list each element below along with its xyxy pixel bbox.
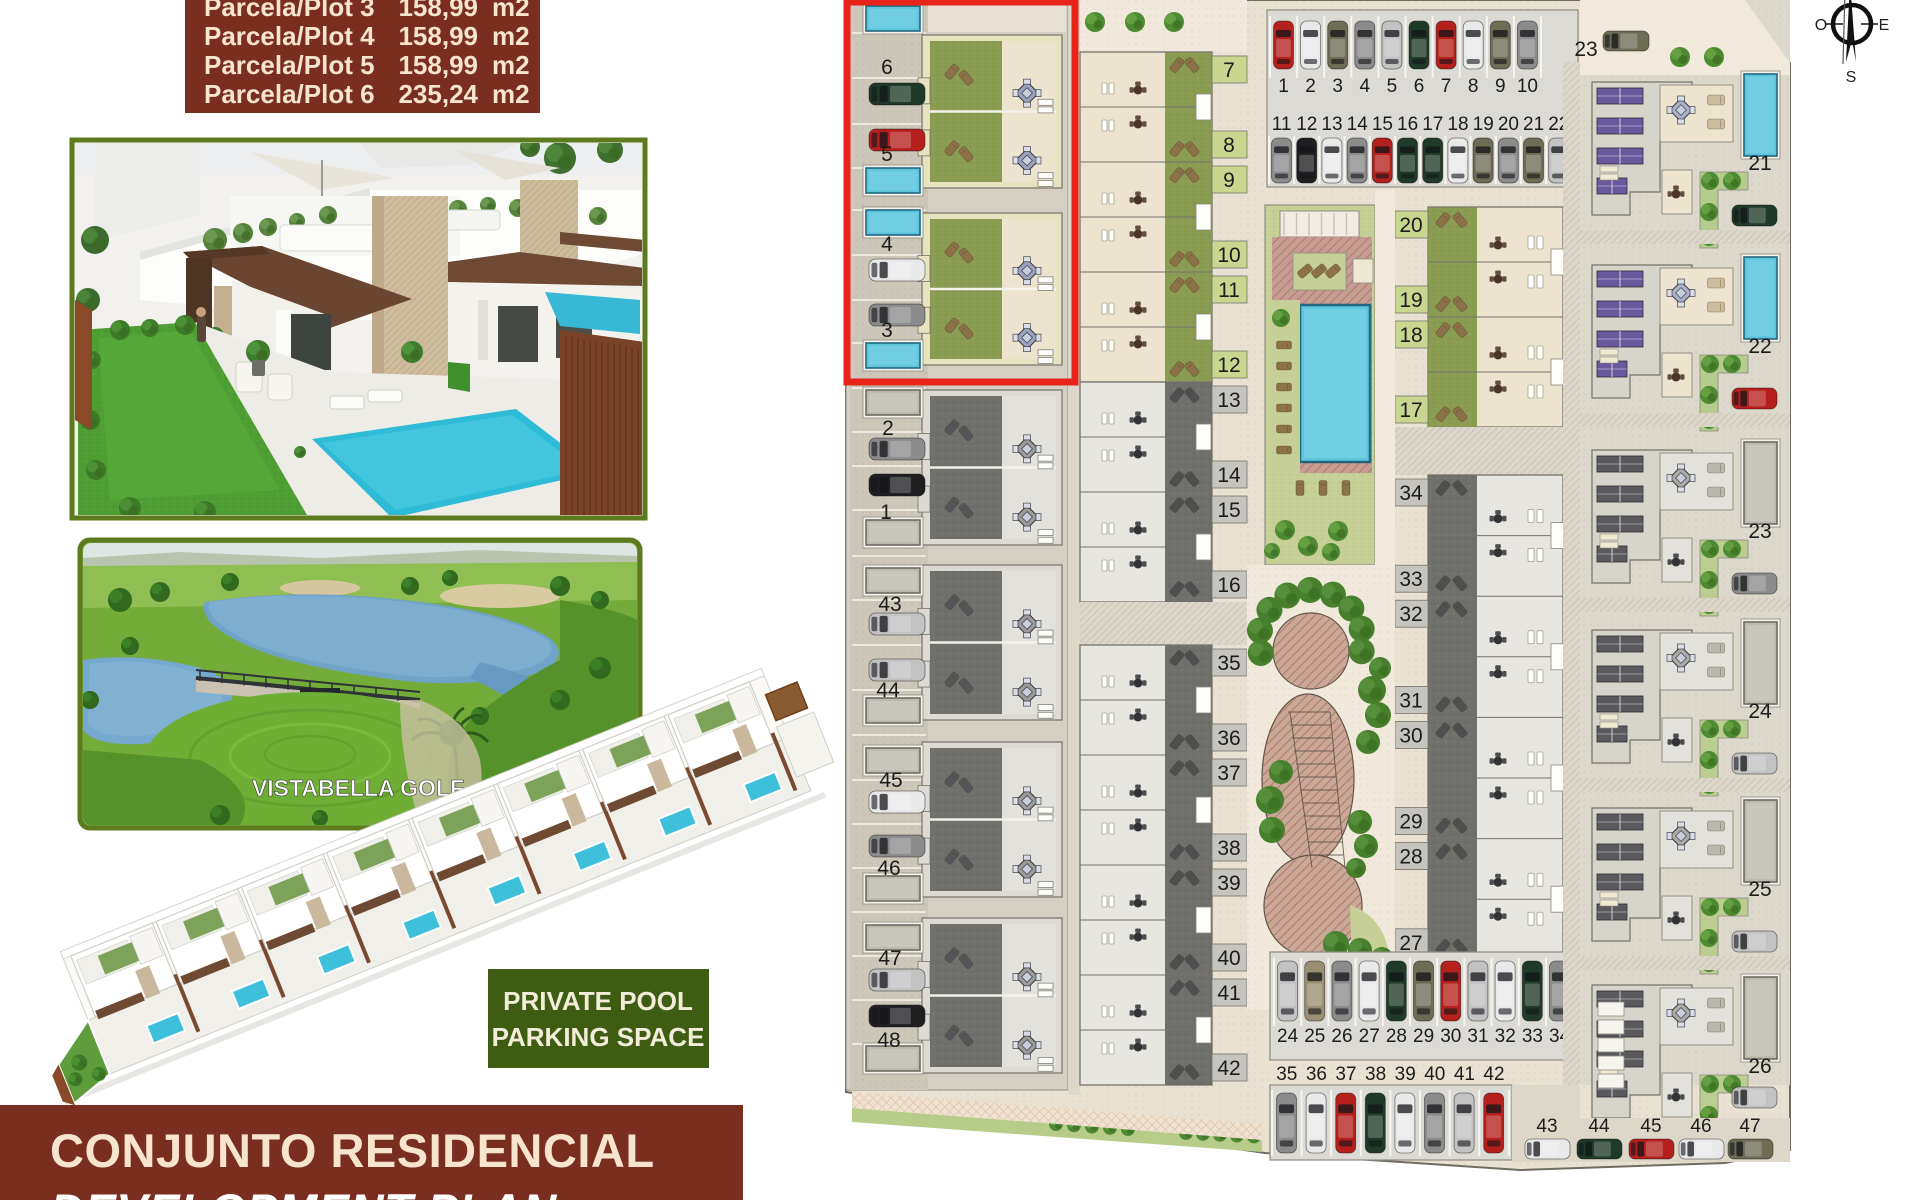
svg-text:Parcela/Plot 4: Parcela/Plot 4 (204, 21, 375, 51)
svg-text:CONJUNTO RESIDENCIAL: CONJUNTO RESIDENCIAL (50, 1124, 655, 1177)
svg-text:39: 39 (1217, 872, 1240, 895)
svg-text:40: 40 (1424, 1064, 1445, 1085)
svg-text:48: 48 (877, 1029, 900, 1052)
svg-text:4: 4 (881, 233, 893, 256)
svg-text:23: 23 (1574, 38, 1597, 61)
svg-text:3: 3 (881, 319, 893, 342)
svg-text:44: 44 (876, 679, 900, 702)
svg-text:13: 13 (1321, 114, 1342, 135)
svg-text:m2: m2 (492, 0, 530, 22)
svg-text:30: 30 (1399, 724, 1422, 747)
svg-text:38: 38 (1217, 837, 1240, 860)
svg-text:26: 26 (1331, 1026, 1352, 1047)
svg-text:42: 42 (1483, 1064, 1504, 1085)
svg-text:9: 9 (1223, 169, 1235, 192)
svg-text:Parcela/Plot 5: Parcela/Plot 5 (204, 50, 375, 80)
svg-text:20: 20 (1399, 214, 1422, 237)
svg-text:2: 2 (1305, 76, 1316, 97)
svg-text:DEVELOPMENT PLAN: DEVELOPMENT PLAN (50, 1184, 557, 1200)
svg-text:5: 5 (1387, 76, 1398, 97)
svg-text:35: 35 (1217, 652, 1240, 675)
svg-text:38: 38 (1365, 1064, 1386, 1085)
svg-text:32: 32 (1495, 1026, 1516, 1047)
svg-text:28: 28 (1399, 846, 1422, 869)
svg-text:46: 46 (877, 857, 900, 880)
svg-text:8: 8 (1223, 134, 1235, 157)
svg-text:m2: m2 (492, 79, 530, 109)
svg-text:158,99: 158,99 (398, 0, 478, 22)
svg-text:2: 2 (882, 417, 894, 440)
svg-text:PRIVATE POOL: PRIVATE POOL (503, 986, 693, 1016)
svg-text:24: 24 (1277, 1026, 1299, 1047)
svg-text:27: 27 (1359, 1026, 1380, 1047)
svg-text:14: 14 (1217, 464, 1241, 487)
svg-text:32: 32 (1399, 603, 1422, 626)
svg-text:15: 15 (1217, 499, 1240, 522)
svg-text:36: 36 (1306, 1064, 1327, 1085)
svg-text:21: 21 (1523, 114, 1544, 135)
svg-text:3: 3 (1332, 76, 1343, 97)
svg-text:30: 30 (1440, 1026, 1461, 1047)
svg-text:S: S (1846, 69, 1857, 86)
svg-text:17: 17 (1422, 114, 1443, 135)
svg-text:8: 8 (1468, 76, 1479, 97)
svg-text:37: 37 (1335, 1064, 1356, 1085)
svg-text:235,24: 235,24 (398, 79, 478, 109)
svg-text:m2: m2 (492, 50, 530, 80)
svg-text:47: 47 (1739, 1116, 1760, 1137)
svg-text:28: 28 (1386, 1026, 1407, 1047)
svg-text:10: 10 (1217, 244, 1240, 267)
svg-text:19: 19 (1399, 289, 1422, 312)
svg-text:O: O (1815, 17, 1827, 34)
svg-text:46: 46 (1690, 1116, 1711, 1137)
svg-text:12: 12 (1217, 354, 1240, 377)
svg-text:18: 18 (1447, 114, 1468, 135)
svg-text:16: 16 (1217, 574, 1240, 597)
svg-text:13: 13 (1217, 389, 1240, 412)
svg-text:158,99: 158,99 (398, 21, 478, 51)
svg-text:29: 29 (1413, 1026, 1434, 1047)
svg-text:12: 12 (1296, 114, 1317, 135)
svg-text:42: 42 (1217, 1057, 1240, 1080)
svg-text:15: 15 (1372, 114, 1393, 135)
svg-text:17: 17 (1399, 399, 1422, 422)
svg-text:41: 41 (1217, 982, 1240, 1005)
svg-text:34: 34 (1399, 482, 1423, 505)
svg-text:23: 23 (1748, 520, 1771, 543)
svg-text:11: 11 (1272, 114, 1292, 135)
svg-text:158,99: 158,99 (398, 50, 478, 80)
svg-text:21: 21 (1748, 152, 1771, 175)
svg-text:24: 24 (1748, 700, 1772, 723)
svg-text:39: 39 (1395, 1064, 1416, 1085)
svg-text:31: 31 (1399, 689, 1422, 712)
svg-text:10: 10 (1517, 76, 1538, 97)
svg-text:25: 25 (1748, 878, 1771, 901)
svg-text:Parcela/Plot 3: Parcela/Plot 3 (204, 0, 375, 22)
svg-text:45: 45 (879, 769, 902, 792)
svg-text:9: 9 (1495, 76, 1506, 97)
svg-text:25: 25 (1304, 1026, 1325, 1047)
svg-text:26: 26 (1748, 1055, 1771, 1078)
svg-text:47: 47 (878, 947, 901, 970)
svg-text:14: 14 (1347, 114, 1369, 135)
svg-text:1: 1 (1278, 76, 1289, 97)
svg-text:43: 43 (878, 593, 901, 616)
svg-text:Parcela/Plot 6: Parcela/Plot 6 (204, 79, 375, 109)
svg-text:11: 11 (1218, 279, 1240, 302)
svg-text:31: 31 (1467, 1026, 1488, 1047)
svg-text:1: 1 (880, 501, 892, 524)
svg-text:40: 40 (1217, 947, 1240, 970)
svg-text:45: 45 (1640, 1116, 1661, 1137)
svg-text:27: 27 (1399, 932, 1422, 955)
svg-text:22: 22 (1748, 335, 1771, 358)
svg-text:35: 35 (1276, 1064, 1297, 1085)
svg-text:7: 7 (1441, 76, 1452, 97)
svg-text:4: 4 (1360, 76, 1371, 97)
svg-text:VISTABELLA GOLF: VISTABELLA GOLF (252, 775, 464, 801)
svg-text:37: 37 (1217, 762, 1240, 785)
svg-text:44: 44 (1588, 1116, 1610, 1137)
svg-text:19: 19 (1473, 114, 1494, 135)
svg-text:18: 18 (1399, 324, 1422, 347)
svg-text:43: 43 (1536, 1116, 1557, 1137)
svg-text:E: E (1879, 17, 1890, 34)
svg-text:7: 7 (1223, 59, 1235, 82)
svg-text:6: 6 (881, 56, 893, 79)
svg-text:5: 5 (881, 143, 893, 166)
svg-text:41: 41 (1454, 1064, 1475, 1085)
svg-text:36: 36 (1217, 727, 1240, 750)
svg-text:PARKING SPACE: PARKING SPACE (492, 1022, 705, 1052)
svg-text:29: 29 (1399, 811, 1422, 834)
svg-text:m2: m2 (492, 21, 530, 51)
svg-text:33: 33 (1522, 1026, 1543, 1047)
svg-text:33: 33 (1399, 568, 1422, 591)
svg-text:6: 6 (1414, 76, 1425, 97)
svg-text:16: 16 (1397, 114, 1418, 135)
svg-text:20: 20 (1498, 114, 1519, 135)
